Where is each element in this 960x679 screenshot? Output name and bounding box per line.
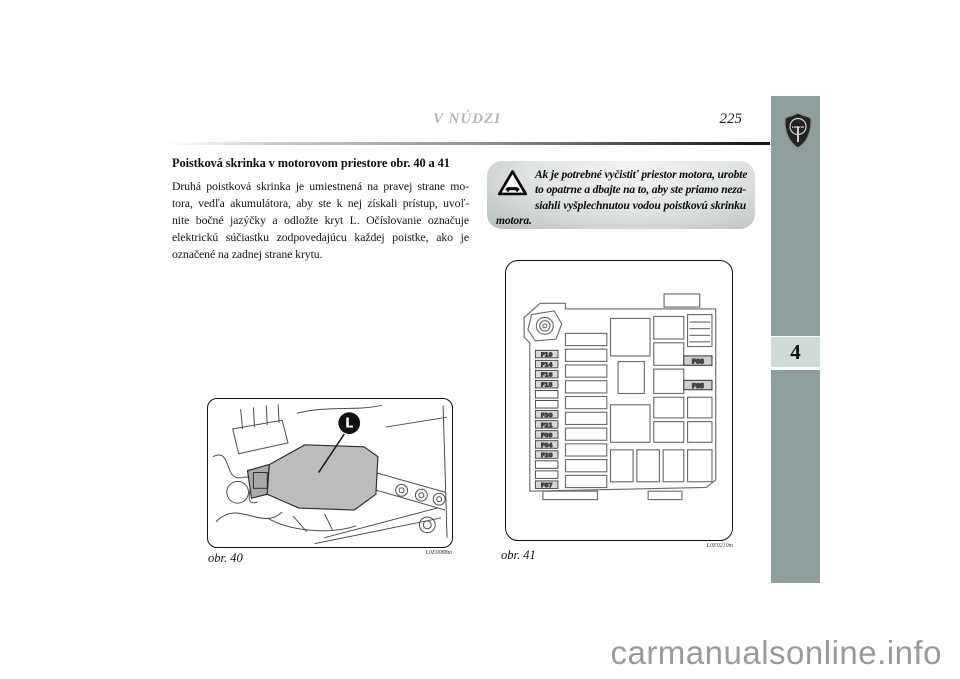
fuse-slot [535, 401, 558, 409]
figure-40-frame: L [207, 398, 453, 548]
figure-41-code: L0E0210m [673, 543, 733, 549]
svg-text:F85: F85 [692, 384, 704, 390]
warning-text-line: to opatrne a dbajte na to, aby ste priam… [496, 182, 746, 197]
svg-text:F20: F20 [541, 453, 553, 459]
svg-text:F16: F16 [541, 373, 553, 379]
warning-triangle-icon [497, 169, 528, 197]
svg-text:F08: F08 [692, 359, 704, 365]
chapter-number-tab: 4 [771, 337, 820, 367]
engine-bay-illustration: L [208, 399, 451, 546]
svg-text:LANCIA: LANCIA [792, 125, 805, 129]
warning-callout-box: Ak je potrebné vyčistiť priestor motora,… [487, 161, 755, 229]
manual-page: V NÚDZI 225 4 LANCIA Poistková skrinka v… [0, 0, 960, 679]
fuse-slot [535, 461, 558, 469]
warning-text-line: Ak je potrebné vyčistiť priestor motora,… [496, 167, 746, 182]
header-divider [166, 142, 770, 145]
article-heading: Poistková skrinka v motorovom priestore … [172, 156, 472, 171]
svg-text:F04: F04 [541, 443, 553, 449]
figure-41-frame: F19 F14 F16 F15 F30 F21 F09 F04 F20 F87 … [505, 260, 733, 541]
fuse-slot: F19 [535, 350, 558, 358]
body-text-line: elektrickú súčiastku zodpovedajúcu každe… [172, 230, 469, 245]
fuse-slot [535, 471, 558, 479]
fuse-slot [535, 390, 558, 398]
fuse-slot: F04 [535, 441, 558, 449]
figure-40-caption: obr. 40 [208, 551, 243, 566]
watermark-text: carmanualsonline.info [610, 634, 942, 672]
page-number: 225 [650, 111, 742, 128]
fuse-slot: F15 [535, 380, 558, 388]
fuse-slot: F21 [535, 421, 558, 429]
fuse-slot: F30 [535, 411, 558, 419]
fuse-slot: F85 [684, 380, 712, 390]
body-text-line: tora, vedľa akumulátora, aby ste k nej z… [172, 196, 469, 211]
fuse-slot: F14 [535, 360, 558, 368]
body-text-line: nite bočné jazýčky a odložte kryt L. Očí… [172, 213, 469, 228]
svg-text:F14: F14 [541, 363, 553, 369]
fuse-slot: F16 [535, 370, 558, 378]
figure-41-caption: obr. 41 [501, 548, 536, 563]
svg-text:F15: F15 [541, 383, 553, 389]
callout-letter: L [345, 417, 353, 432]
left-fuse-column: F19 F14 F16 F15 F30 F21 F09 F04 F20 F87 [535, 350, 558, 489]
body-text-line: Druhá poistková skrinka je umiestnená na… [172, 179, 469, 194]
right-fuse-labels: F08 F85 [684, 356, 712, 390]
body-text-line: označené na zadnej strane krytu. [172, 247, 469, 262]
svg-text:F87: F87 [541, 483, 553, 489]
svg-text:F21: F21 [541, 423, 553, 429]
figure-40-code: L0E0088m [392, 550, 452, 556]
svg-text:F19: F19 [541, 352, 553, 358]
svg-text:F30: F30 [541, 413, 553, 419]
fuse-slot: F08 [684, 356, 712, 366]
fuse-slot: F20 [535, 451, 558, 459]
fuse-box-diagram: F19 F14 F16 F15 F30 F21 F09 F04 F20 F87 … [511, 265, 727, 537]
svg-text:F09: F09 [541, 433, 553, 439]
sidebar-band-bottom [771, 370, 820, 583]
warning-text-line: motora. [496, 213, 746, 228]
warning-text-line: siahli vyšplechnutou vodou poistkovú skr… [496, 198, 746, 213]
lancia-logo-icon: LANCIA [783, 112, 813, 149]
fuse-slot: F09 [535, 431, 558, 439]
fuse-slot: F87 [535, 481, 558, 489]
